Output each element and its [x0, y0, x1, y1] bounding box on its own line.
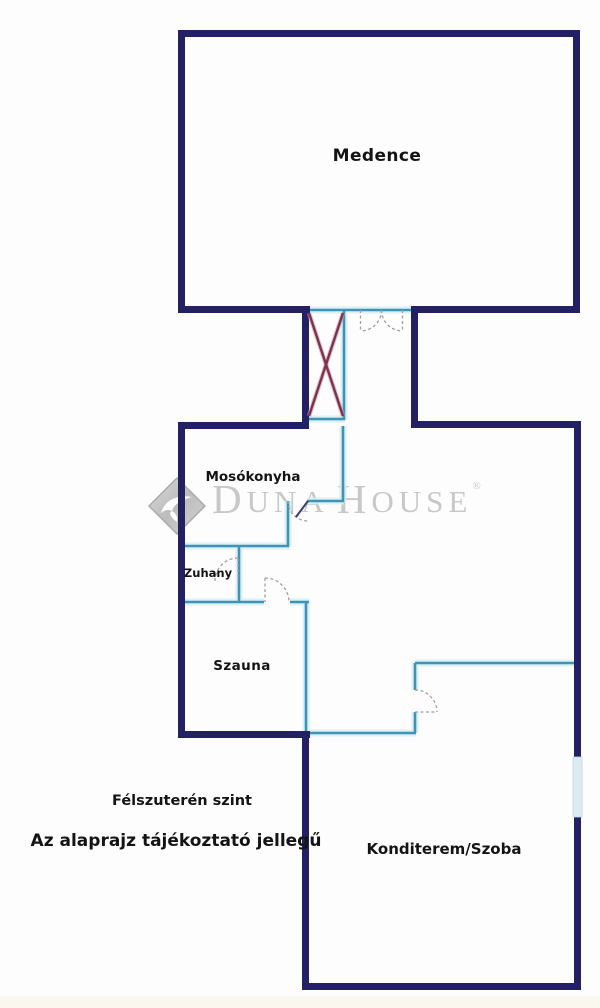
- stairs-cross-icon: [309, 313, 343, 416]
- wall-mosokonyha-top: [178, 422, 309, 429]
- wall-medence-right: [573, 30, 580, 313]
- room-label-zuhany: Zuhany: [184, 566, 232, 580]
- room-label-mosokonyha: Mosókonyha: [205, 469, 300, 485]
- wall-szauna-bottom: [178, 731, 310, 738]
- door-szauna-swing: [265, 578, 289, 602]
- wall-konditerem-left: [302, 731, 309, 990]
- wall-right-outer-upper: [574, 421, 581, 758]
- floorplan-page: DUNAHOUSE®: [0, 0, 600, 1008]
- room-label-konditerem: Konditerem/Szoba: [367, 840, 522, 858]
- disclaimer-text: Az alaprajz tájékoztató jellegű: [31, 831, 322, 851]
- floor-level-text: Félszuterén szint: [112, 793, 252, 809]
- wall-medence-left: [178, 30, 185, 313]
- wall-right-outer-lower: [574, 816, 581, 990]
- door-mosokonyha-leaf: [296, 501, 308, 517]
- wall-medence-top: [178, 30, 580, 37]
- room-label-medence: Medence: [333, 146, 422, 166]
- window-konditerem: [573, 757, 582, 817]
- door-konditerem-swing: [415, 690, 437, 712]
- wall-left-outer: [178, 422, 185, 738]
- wall-annex-top: [411, 421, 581, 428]
- wall-bottom-outer: [302, 983, 581, 990]
- wall-stairshaft-left: [302, 306, 309, 426]
- wall-medence-bottom-left: [178, 306, 310, 313]
- room-label-szauna: Szauna: [213, 658, 270, 674]
- wall-corridor-right: [411, 306, 418, 428]
- wall-medence-bottom-right: [411, 306, 580, 313]
